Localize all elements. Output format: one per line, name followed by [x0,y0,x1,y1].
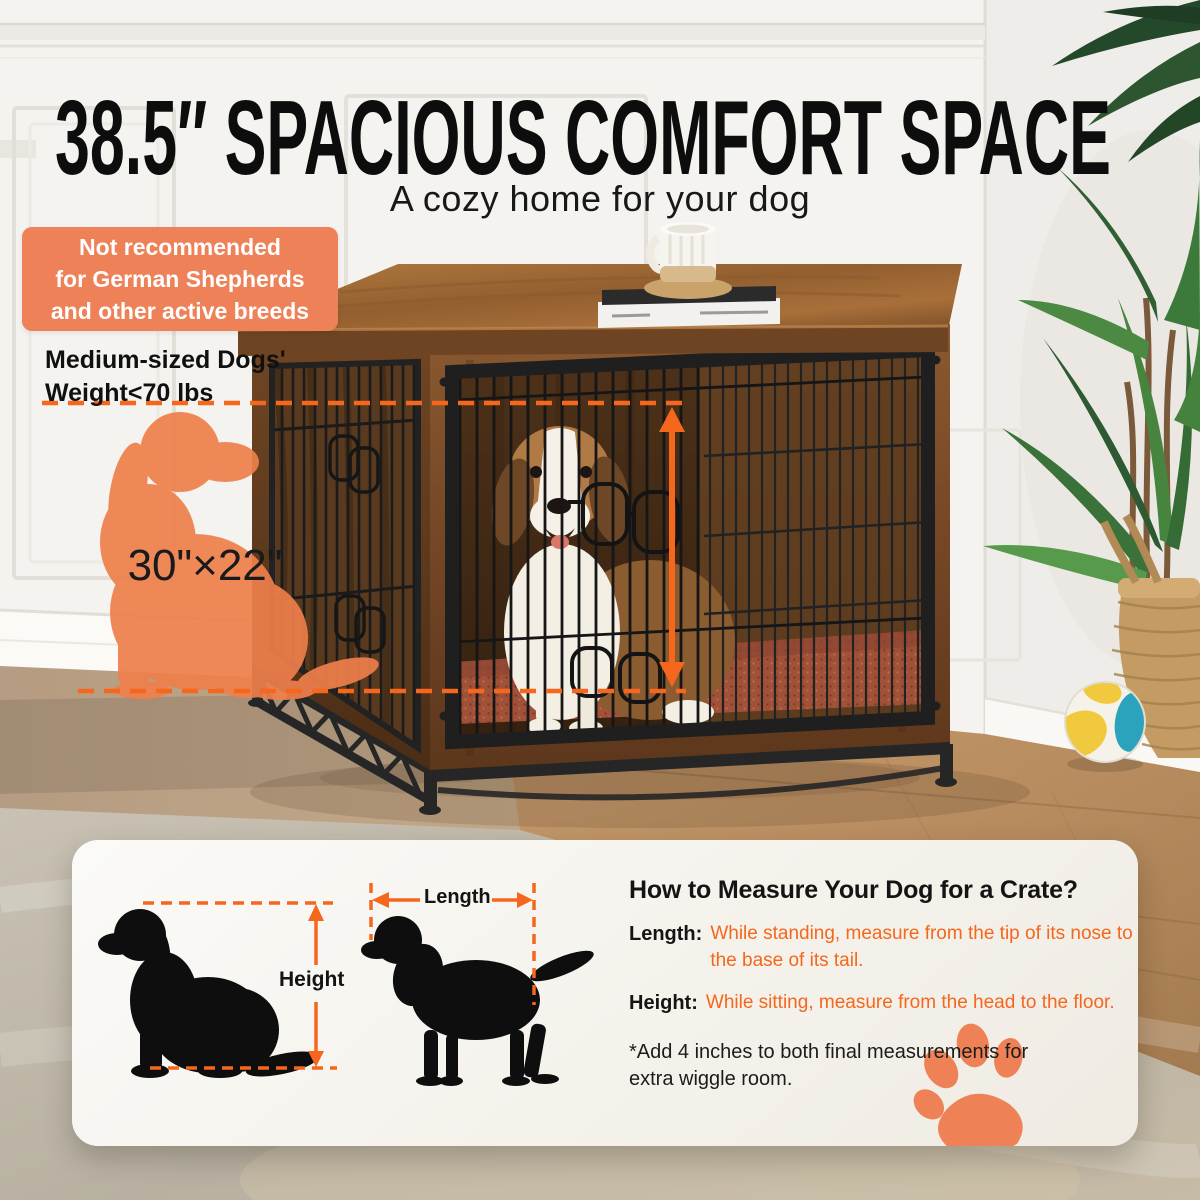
height-instruction-row: Height: While sitting, measure from the … [629,990,1134,1017]
measure-footnote: *Add 4 inches to both final measurements… [629,1039,1059,1093]
weight-note-line-1: Medium-sized Dogs' [45,344,286,377]
length-text: While standing, measure from the tip of … [710,921,1134,974]
length-diagram-label: Length [424,886,491,909]
page-title: 38.5″ SPACIOUS COMFORT SPACE [55,86,1111,190]
weight-note: Medium-sized Dogs' Weight<70 lbs [45,344,286,409]
sitting-dog-silhouette [98,909,320,1081]
standing-dog-silhouette [361,916,597,1086]
not-recommended-badge: Not recommended for German Shepherds and… [22,227,338,331]
height-text: While sitting, measure from the head to … [706,990,1115,1017]
product-infographic: 30"×22" 38.5″ SPACIOUS COMFORT SPACE A c… [0,0,1200,1200]
weight-note-line-2: Weight<70 lbs [45,377,286,410]
badge-line-3: and other active breeds [22,295,338,327]
length-label: Length: [629,921,702,948]
silhouette-size-label: 30"×22" [128,541,283,590]
measure-heading: How to Measure Your Dog for a Crate? [629,876,1134,905]
measure-guide-panel: Height Length How to Measure Your Dog fo… [72,840,1138,1146]
height-diagram-label: Height [279,968,344,992]
page-subtitle: A cozy home for your dog [0,178,1200,220]
badge-line-2: for German Shepherds [22,263,338,295]
headline-block: 38.5″ SPACIOUS COMFORT SPACE [0,86,1200,190]
badge-line-1: Not recommended [22,231,338,263]
measure-instructions: How to Measure Your Dog for a Crate? Len… [629,876,1134,1093]
length-instruction-row: Length: While standing, measure from the… [629,921,1134,974]
height-label: Height: [629,990,698,1017]
